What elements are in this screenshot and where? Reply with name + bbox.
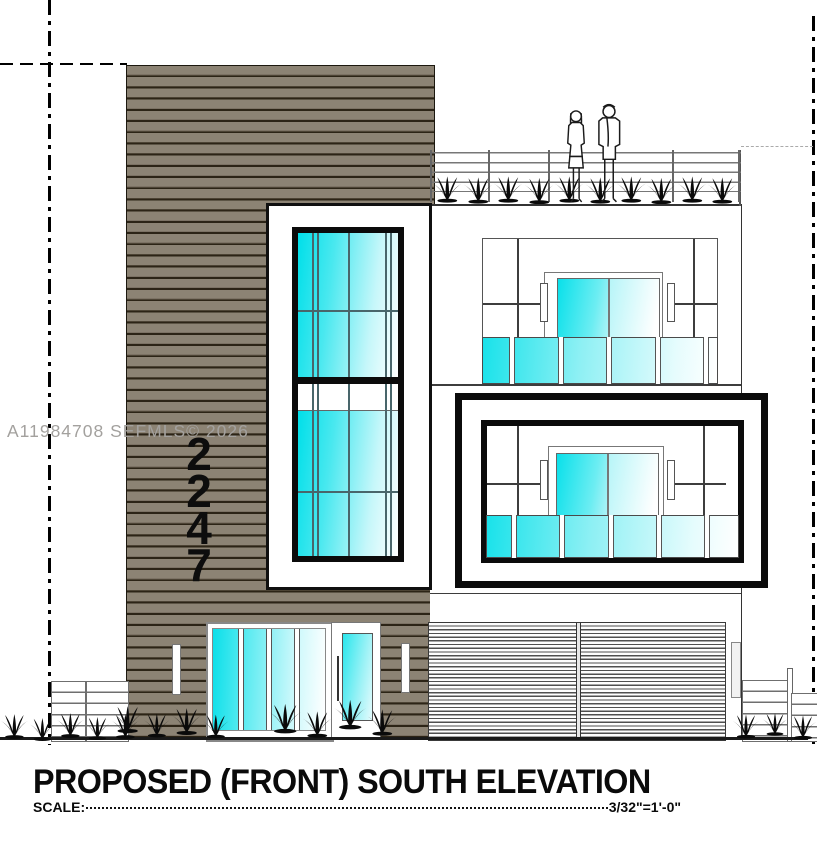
balustrade-divider — [704, 515, 710, 558]
balustrade-divider — [511, 515, 517, 558]
plant-icon — [112, 693, 143, 745]
balustrade-divider — [655, 337, 661, 384]
panel-mullion — [517, 239, 519, 338]
glass-pane — [557, 454, 608, 518]
slot-window — [172, 644, 181, 695]
panel-mullion — [693, 239, 695, 338]
property-line-left — [48, 0, 51, 745]
slot-window — [401, 643, 410, 693]
window-mullion — [317, 233, 319, 556]
window-mullion — [390, 233, 392, 556]
panel-rail — [672, 303, 717, 305]
ground-plants-right — [732, 700, 817, 746]
slot-window — [731, 642, 741, 698]
floor2-window-frame — [481, 420, 744, 563]
floor2-projecting-frame — [455, 393, 768, 588]
property-line-right — [812, 16, 815, 745]
panel-rail — [670, 483, 726, 485]
glass-pane — [558, 279, 609, 339]
glazing-divider — [238, 629, 244, 730]
floor-line-lower — [430, 593, 741, 594]
plant-icon — [493, 174, 524, 204]
door-jamb — [667, 283, 675, 322]
plant-icon — [646, 177, 677, 204]
plant-icon — [56, 704, 85, 746]
balustrade-divider — [606, 337, 612, 384]
panel-mullion — [703, 426, 705, 517]
tall-window — [292, 227, 404, 562]
plant-icon — [202, 707, 230, 745]
railing-post — [738, 150, 740, 202]
plant-icon — [302, 702, 333, 746]
ground-plants-entry-right — [268, 678, 398, 746]
person-man-figure — [592, 103, 626, 205]
railing-height-reference-line — [741, 146, 813, 147]
plant-icon — [677, 174, 708, 204]
plant-icon — [463, 176, 494, 204]
plant-icon — [432, 174, 463, 204]
plant-icon — [524, 177, 555, 204]
glass-pane — [608, 454, 659, 518]
plant-icon — [29, 712, 56, 746]
panel-mullion — [517, 426, 519, 517]
scale-row: SCALE: 3/32"=1'-0" — [33, 799, 681, 815]
house-number-digit: 7 — [183, 547, 215, 584]
floor3-window-panel — [482, 238, 718, 384]
window-mullion — [385, 233, 387, 556]
entry-tower-panel — [266, 203, 432, 590]
garage-door[interactable] — [428, 622, 726, 741]
panel-rail — [487, 483, 540, 485]
plant-icon — [84, 710, 111, 746]
plant-icon — [171, 697, 202, 745]
door-jamb — [540, 460, 548, 500]
plant-icon — [789, 708, 817, 746]
balustrade-divider — [656, 515, 662, 558]
door-jamb — [667, 460, 675, 500]
glass-balustrade — [486, 515, 739, 558]
balustrade-divider — [703, 337, 709, 384]
plant-icon — [732, 706, 760, 746]
glass-pane — [609, 279, 660, 339]
balustrade-divider — [608, 515, 614, 558]
balustrade-divider — [559, 515, 565, 558]
plant-icon — [707, 176, 738, 204]
garage-door-divider — [576, 623, 581, 740]
house-number: 2 2 4 7 — [183, 436, 215, 584]
glass-balustrade — [482, 337, 718, 384]
window-mullion — [312, 233, 314, 556]
balustrade-divider — [558, 337, 564, 384]
plant-icon — [367, 698, 398, 746]
floor-line-upper — [430, 384, 741, 386]
scale-label: SCALE: — [33, 799, 85, 815]
window-transom-bar — [298, 377, 398, 384]
person-woman-figure — [560, 107, 592, 205]
balustrade-divider — [509, 337, 515, 384]
ground-plants-entry-left — [112, 690, 230, 745]
plant-icon — [762, 702, 788, 746]
door-jamb — [540, 283, 548, 322]
slider-door-glass — [557, 278, 660, 340]
scale-value: 3/32"=1'-0" — [609, 799, 681, 815]
panel-rail — [483, 303, 542, 305]
plant-icon — [268, 690, 302, 746]
plant-icon — [333, 682, 367, 746]
slider-door-glass — [556, 453, 659, 519]
plant-icon — [143, 705, 171, 745]
drawing-title: PROPOSED (FRONT) SOUTH ELEVATION — [33, 763, 651, 802]
roof-datum-line — [0, 63, 127, 65]
elevation-drawing: A11984708 SEFMLS© 2026 2 2 4 7 PROPOSED … — [0, 0, 817, 862]
plant-icon — [0, 706, 29, 746]
scale-leader-line — [86, 807, 608, 809]
mls-watermark: A11984708 SEFMLS© 2026 — [7, 421, 249, 442]
window-mullion — [348, 233, 350, 556]
